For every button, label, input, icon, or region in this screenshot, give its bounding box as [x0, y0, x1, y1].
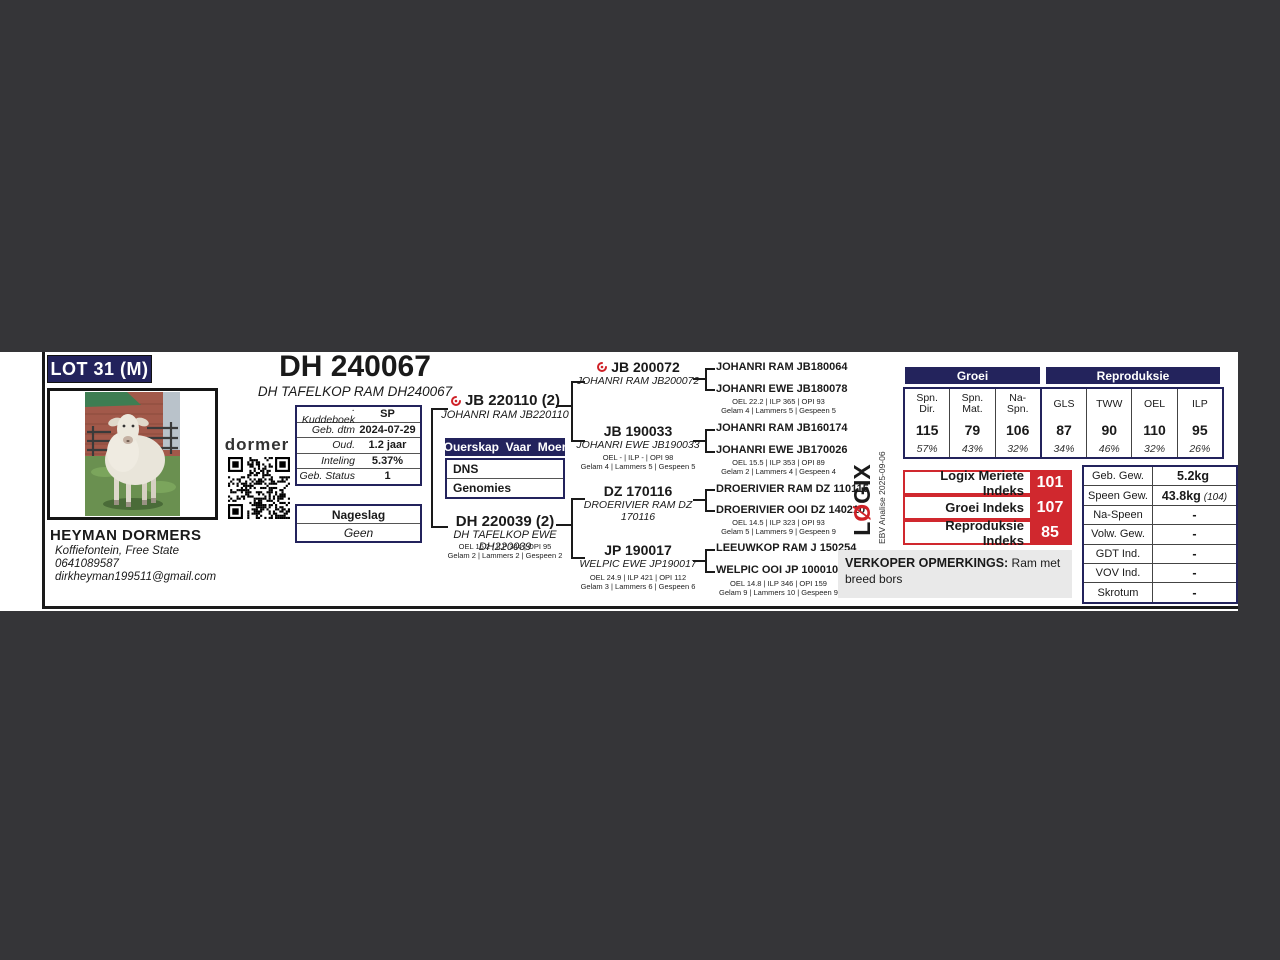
ebv-value: 79 [965, 422, 981, 438]
ebv-header: Dir. [916, 404, 938, 415]
ebv-header: ILP [1192, 399, 1208, 410]
sire-name: JOHANRI RAM JB220110 [437, 409, 573, 421]
groei-indeks-row: Groei Indeks 107 [903, 495, 1072, 520]
granddam-id: JB 190033 [570, 423, 706, 439]
ebv-header: Mat. [962, 404, 984, 415]
reproduksie-header-bar: Reproduksie [1046, 367, 1220, 384]
sire-id: JB 220110 (2) [437, 392, 573, 409]
info-value: 1 [355, 470, 420, 482]
great-grandparent-stats: Gelam 5 | Lammers 9 | Gespeen 9 [716, 527, 841, 536]
ebv-accuracy: 57% [917, 443, 938, 455]
viewer-background: LOT 31 (M) [0, 0, 1280, 960]
pedigree-line [705, 571, 715, 573]
pedigree-line [705, 389, 715, 391]
granddam-name: WELPIC EWE JP190017 [570, 558, 706, 570]
ebv-value: 115 [916, 422, 939, 438]
stat-label: Speen Gew. [1084, 486, 1153, 504]
ebv-accuracy: 46% [1099, 443, 1120, 455]
table-row: Geb. dtm2024-07-29 [297, 423, 420, 439]
groei-header-bar: Groei [905, 367, 1040, 384]
pedigree-line [705, 549, 715, 551]
table-row: Speen Gew.43.8kg(104) [1084, 486, 1236, 505]
dam-stats: Gelam 2 | Lammers 2 | Gespeen 2 [437, 551, 573, 560]
studbook-icon [450, 395, 462, 407]
table-row: Oud.1.2 jaar [297, 438, 420, 454]
info-value: 1.2 jaar [355, 439, 420, 451]
granddam-name: JOHANRI EWE JB190033 [570, 439, 706, 451]
stat-label: Geb. Gew. [1084, 467, 1153, 485]
pedigree-line [705, 368, 715, 370]
page-left-border [42, 352, 45, 608]
great-grandparent-name: JOHANRI EWE JB170026 [716, 444, 847, 456]
ebv-column: Spn.Mat. 79 43% [950, 389, 995, 457]
nageslag-header: Nageslag [297, 506, 420, 524]
great-grandparent-name: JOHANRI RAM JB180064 [716, 361, 847, 373]
ebv-column: Na-Spn. 106 32% [996, 389, 1042, 457]
table-row: Geb. Gew.5.2kg [1084, 467, 1236, 486]
table-row: Volw. Gew.- [1084, 525, 1236, 544]
great-grandparent-name: WELPIC OOI JP 100010 [716, 564, 838, 576]
ebv-column: Spn.Dir. 115 57% [905, 389, 950, 457]
index-label: Reproduksie Indeks [905, 522, 1030, 543]
great-grandparent-name: LEEUWKOP RAM J 150254 [716, 542, 856, 554]
seller-remarks-box: VERKOPER OPMERKINGS: Ram met breed bors [838, 550, 1072, 598]
stat-label: Volw. Gew. [1084, 525, 1153, 543]
great-grandparent-name: JOHANRI EWE JB180078 [716, 383, 847, 395]
stat-label: Skrotum [1084, 583, 1153, 601]
breeder-location: Koffiefontein, Free State [55, 545, 179, 557]
great-grandparent-stats: OEL 14.8 | ILP 346 | OPI 159 [716, 579, 841, 588]
index-label: Logix Meriete Indeks [905, 472, 1030, 493]
ebv-header: Spn. [1007, 404, 1029, 415]
animal-info-table: . KuddeboekSP Geb. dtm2024-07-29 Oud.1.2… [295, 405, 422, 486]
pedigree-line [705, 489, 715, 491]
reproduksie-indeks-row: Reproduksie Indeks 85 [903, 520, 1072, 545]
granddam-stats: Gelam 4 | Lammers 5 | Gespeen 5 [570, 462, 706, 471]
index-value: 107 [1030, 497, 1070, 518]
table-row: Inteling5.37% [297, 454, 420, 470]
index-label: Groei Indeks [905, 497, 1030, 518]
ouerskap-box: DNS Genomies [445, 458, 565, 499]
catalog-page: LOT 31 (M) [0, 352, 1238, 611]
ebv-value: 106 [1006, 422, 1029, 438]
stat-label: GDT Ind. [1084, 545, 1153, 563]
info-value: SP [355, 408, 420, 420]
grandsire-id-text: DZ 170116 [604, 483, 673, 499]
stat-value: - [1192, 547, 1196, 561]
info-label: . Kuddeboek [297, 402, 355, 426]
animal-photo-frame [47, 388, 218, 520]
table-row: GDT Ind.- [1084, 545, 1236, 564]
ebv-accuracy: 32% [1144, 443, 1165, 455]
ebv-value: 90 [1101, 422, 1117, 438]
granddam-stats: OEL 24.9 | ILP 421 | OPI 112 [570, 573, 706, 582]
ebv-header: TWW [1096, 399, 1122, 410]
dam-id: DH 220039 (2) [437, 513, 573, 530]
stat-note: (104) [1204, 492, 1227, 503]
great-grandparent-stats: Gelam 2 | Lammers 4 | Gespeen 4 [716, 467, 841, 476]
logix-logo: LØGIX [847, 455, 877, 545]
nageslag-box: Nageslag Geen [295, 504, 422, 543]
granddam-id-text: JP 190017 [604, 542, 671, 558]
stat-value: - [1192, 527, 1196, 541]
great-grandparent-stats: Gelam 4 | Lammers 5 | Gespeen 5 [716, 406, 841, 415]
index-value: 85 [1030, 522, 1070, 543]
index-value: 101 [1030, 472, 1070, 493]
grandsire-id-text: JB 200072 [611, 359, 680, 375]
dam-id-text: DH 220039 (2) [456, 513, 554, 530]
stat-value: - [1192, 566, 1196, 580]
table-row: Skrotum- [1084, 583, 1236, 601]
breeder-name: HEYMAN DORMERS [50, 527, 201, 544]
ebv-column: ILP 95 26% [1178, 389, 1222, 457]
grandsire-name: DROERIVIER RAM DZ 170116 [570, 499, 706, 523]
breeder-email: dirkheyman199511@gmail.com [55, 571, 216, 583]
animal-photo [85, 392, 180, 516]
breeder-phone: 0641089587 [55, 558, 119, 570]
stat-value: 5.2kg [1177, 469, 1209, 483]
ebv-analysis-date: EBV Analise 2025-09-06 [877, 464, 889, 544]
ebv-accuracy: 34% [1053, 443, 1074, 455]
ebv-value: 95 [1192, 422, 1208, 438]
info-label: Oud. [297, 439, 355, 451]
table-row: Na-Speen- [1084, 506, 1236, 525]
pedigree-line [705, 510, 715, 512]
logix-meriete-indeks-row: Logix Meriete Indeks 101 [903, 470, 1072, 495]
stat-value: - [1192, 508, 1196, 522]
pedigree-line [705, 429, 715, 431]
animal-id-title: DH 240067 [255, 350, 455, 384]
info-label: Geb. Status [297, 470, 355, 482]
logix-logo-text: L [849, 522, 876, 536]
ebv-accuracy: 43% [962, 443, 983, 455]
nageslag-value: Geen [297, 524, 420, 541]
ebv-table: Spn.Dir. 115 57% Spn.Mat. 79 43% Na-Spn.… [903, 387, 1224, 459]
ouerskap-genomies-row: Genomies [447, 479, 563, 497]
page-bottom-border [42, 606, 1238, 609]
ebv-column: TWW 90 46% [1087, 389, 1132, 457]
table-row: Geb. Status1 [297, 469, 420, 484]
great-grandparent-name: DROERIVIER RAM DZ 110115 [716, 483, 869, 495]
ouerskap-header: Ouerskap Vaar Moer [445, 438, 565, 456]
logix-logo-o: Ø [849, 504, 876, 522]
stat-label: Na-Speen [1084, 506, 1153, 524]
qr-code [228, 457, 290, 519]
great-grandparent-name: DROERIVIER OOI DZ 140210 [716, 504, 865, 516]
ebv-accuracy: 26% [1189, 443, 1210, 455]
lot-badge: LOT 31 (M) [47, 355, 152, 383]
animal-name-subtitle: DH TAFELKOP RAM DH240067 [245, 384, 465, 399]
grandsire-name: JOHANRI RAM JB200072 [570, 375, 706, 387]
dormer-logo: dormer [220, 435, 294, 455]
pedigree-line [705, 451, 715, 453]
great-grandparent-name: JOHANRI RAM JB160174 [716, 422, 847, 434]
table-row: . KuddeboekSP [297, 407, 420, 423]
ebv-accuracy: 32% [1007, 443, 1028, 455]
ouerskap-dns-row: DNS [447, 460, 563, 479]
great-grandparent-stats: OEL 22.2 | ILP 365 | OPI 93 [716, 397, 841, 406]
granddam-id-text: JB 190033 [604, 423, 673, 439]
ebv-column: GLS 87 34% [1042, 389, 1087, 457]
grandsire-id: DZ 170116 [570, 483, 706, 499]
granddam-id: JP 190017 [570, 542, 706, 558]
granddam-stats: Gelam 3 | Lammers 6 | Gespeen 6 [570, 582, 706, 591]
info-label: Geb. dtm [297, 424, 355, 436]
table-row: VOV Ind.- [1084, 564, 1236, 583]
dam-stats: OEL 16.2 | ILP 344 | OPI 95 [437, 542, 573, 551]
ebv-column: OEL 110 32% [1132, 389, 1177, 457]
logix-logo-text: GIX [849, 464, 876, 504]
granddam-stats: OEL - | ILP - | OPI 98 [570, 453, 706, 462]
ebv-header: OEL [1144, 399, 1165, 410]
ebv-value: 110 [1143, 422, 1166, 438]
info-value: 5.37% [355, 455, 420, 467]
info-value: 2024-07-29 [355, 424, 420, 436]
ebv-header: GLS [1053, 399, 1074, 410]
pedigree-line [431, 408, 433, 527]
ebv-value: 87 [1056, 422, 1072, 438]
grandsire-id: JB 200072 [570, 359, 706, 375]
seller-remarks-label: VERKOPER OPMERKINGS: [845, 556, 1008, 570]
stat-value: - [1192, 586, 1196, 600]
stat-label: VOV Ind. [1084, 564, 1153, 582]
great-grandparent-stats: OEL 15.5 | ILP 353 | OPI 89 [716, 458, 841, 467]
studbook-icon [596, 361, 608, 373]
weight-stats-table: Geb. Gew.5.2kg Speen Gew.43.8kg(104) Na-… [1082, 465, 1238, 604]
sire-id-text: JB 220110 (2) [465, 392, 560, 409]
great-grandparent-stats: Gelam 9 | Lammers 10 | Gespeen 9 [716, 588, 841, 597]
info-label: Inteling [297, 455, 355, 467]
stat-value: 43.8kg [1162, 489, 1201, 503]
great-grandparent-stats: OEL 14.5 | ILP 323 | OPI 93 [716, 518, 841, 527]
